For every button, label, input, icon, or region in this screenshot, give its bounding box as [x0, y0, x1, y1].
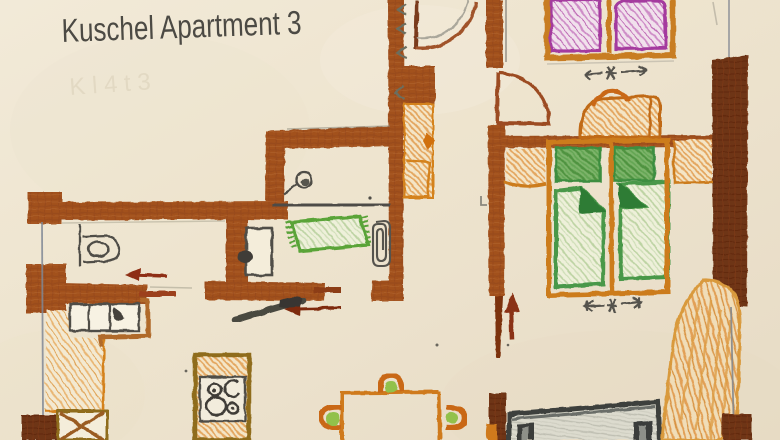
svg-text:K l 4 t 3: K l 4 t 3 — [69, 68, 152, 101]
